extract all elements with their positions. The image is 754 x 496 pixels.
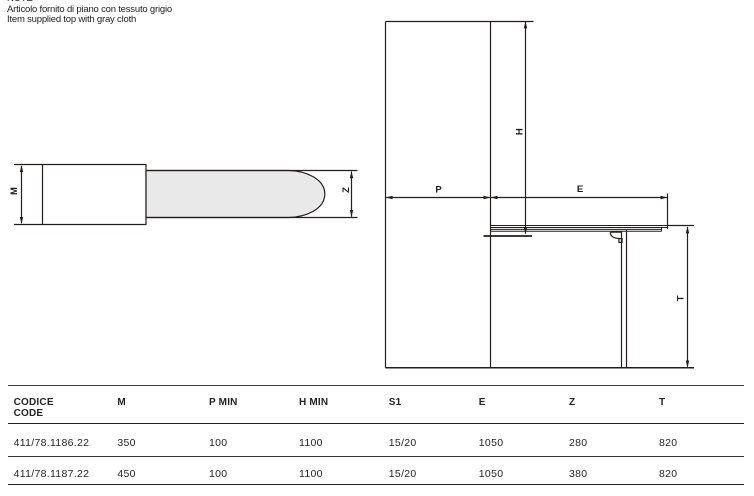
svg-text:P: P bbox=[435, 185, 442, 196]
svg-text:M: M bbox=[9, 187, 20, 195]
svg-text:Z: Z bbox=[341, 187, 352, 193]
svg-text:T: T bbox=[676, 295, 687, 301]
svg-text:E: E bbox=[577, 184, 583, 195]
svg-text:H: H bbox=[515, 128, 526, 135]
